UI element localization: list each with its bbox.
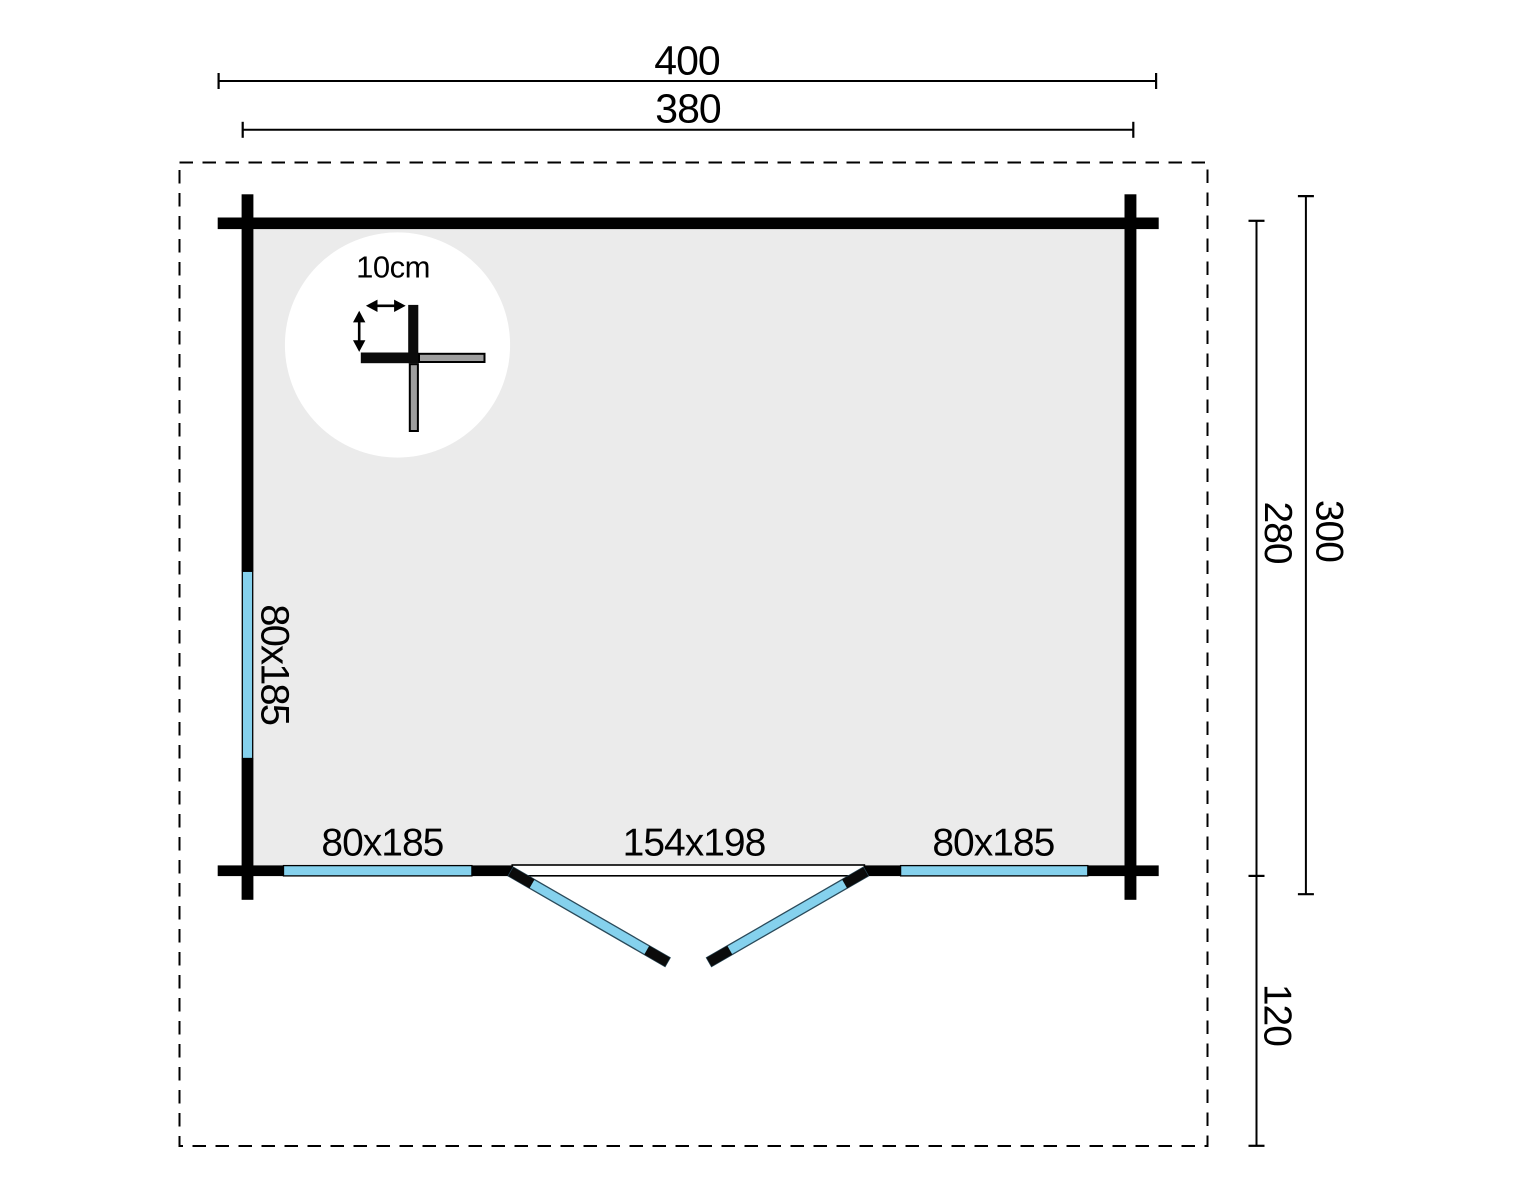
svg-text:380: 380 <box>655 85 721 131</box>
svg-text:280: 280 <box>1256 501 1299 563</box>
svg-text:300: 300 <box>1308 500 1351 562</box>
svg-text:80x185: 80x185 <box>321 822 443 865</box>
svg-text:154x198: 154x198 <box>623 822 766 865</box>
svg-text:10cm: 10cm <box>356 249 430 284</box>
svg-text:400: 400 <box>654 37 720 83</box>
svg-text:80x185: 80x185 <box>932 822 1054 865</box>
svg-text:120: 120 <box>1256 984 1299 1046</box>
svg-text:80x185: 80x185 <box>253 604 297 724</box>
